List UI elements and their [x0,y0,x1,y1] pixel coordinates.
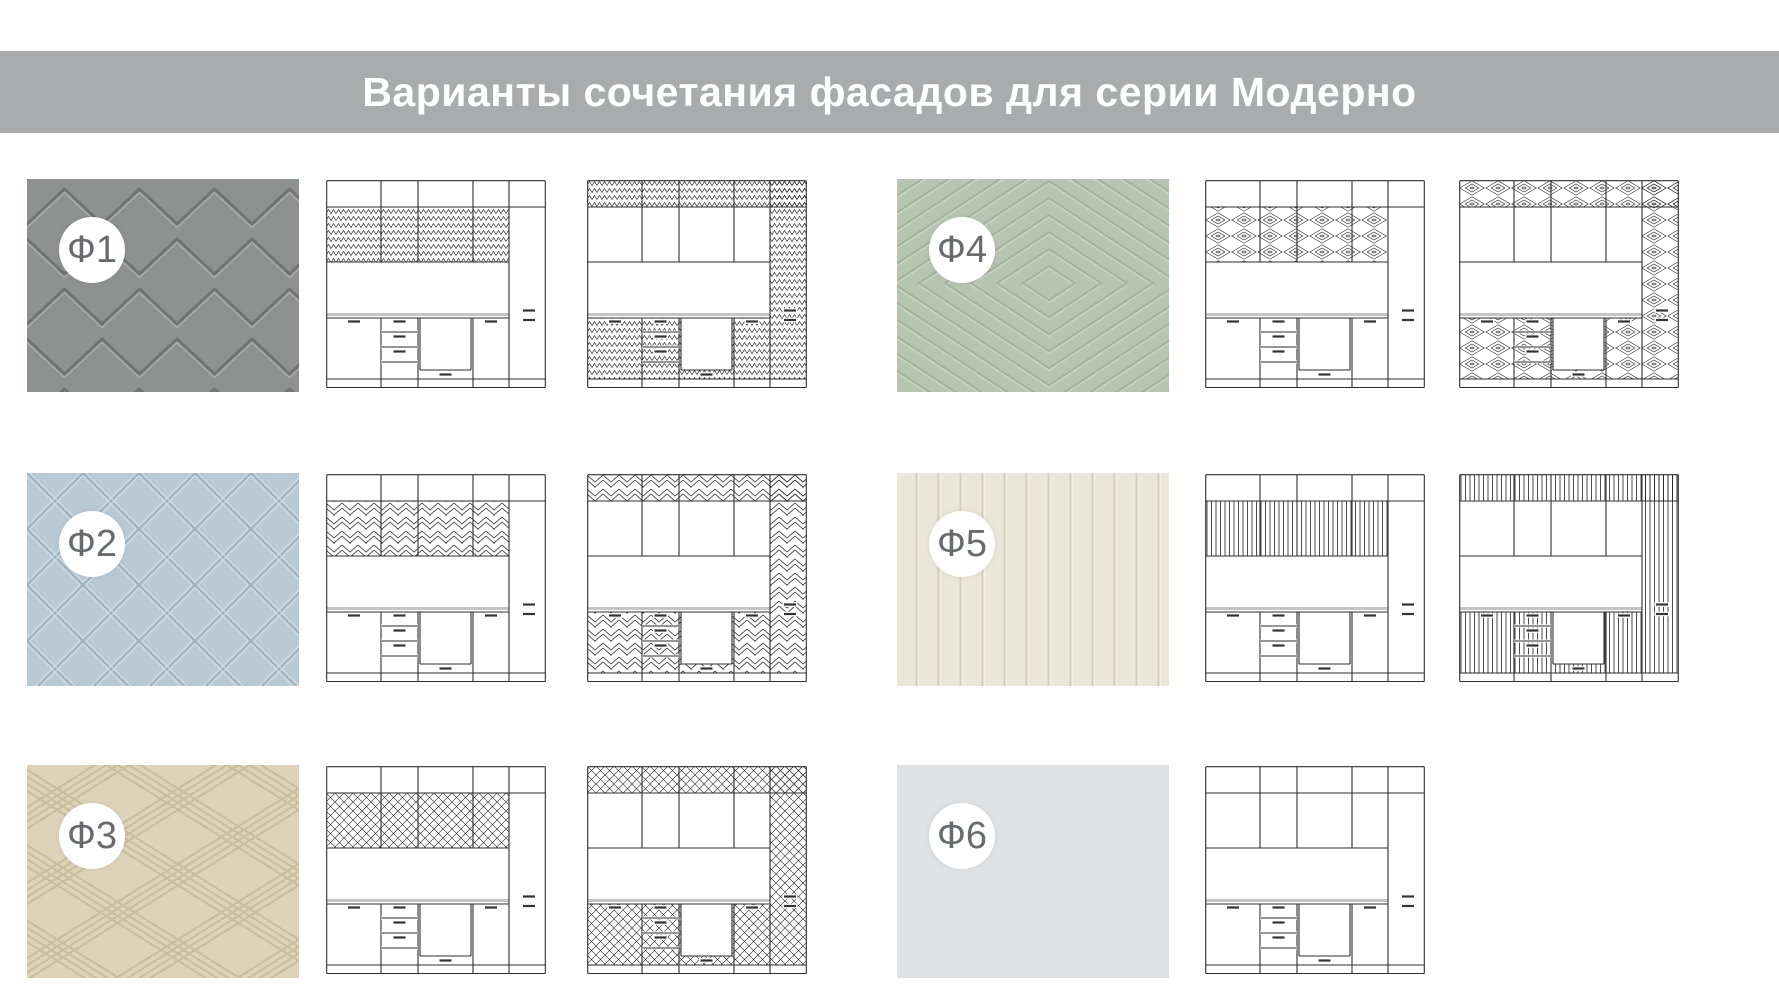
facade-f4-label: Ф4 [937,231,987,269]
facade-f6-badge: Ф6 [929,803,995,869]
facade-f5-swatch: Ф5 [897,473,1169,686]
facade-f2-label: Ф2 [67,525,117,563]
facade-f4-kitchen-wrap-accent [1459,180,1679,391]
facade-f3-texture [27,765,299,978]
title-banner: Варианты сочетания фасадов для серии Мод… [0,51,1779,133]
facade-f6-swatch: Ф6 [897,765,1169,978]
facade-f5-kitchen-wrap-accent [1459,474,1679,685]
facade-f3-kitchen-wrap-accent [587,766,807,977]
facade-f3-swatch: Ф3 [27,765,299,978]
catalog-page: Варианты сочетания фасадов для серии Мод… [0,0,1779,1000]
facade-f5-texture [897,473,1169,686]
facade-f6-label: Ф6 [937,817,987,855]
facade-f5-label: Ф5 [937,525,987,563]
facade-f4-badge: Ф4 [929,217,995,283]
facade-f4-texture [897,179,1169,392]
page-title: Варианты сочетания фасадов для серии Мод… [362,69,1416,116]
facade-f3-kitchen-upper-accent [326,766,546,977]
facade-f2-swatch: Ф2 [27,473,299,686]
facade-f3-badge: Ф3 [59,803,125,869]
facade-f2-texture [27,473,299,686]
facade-f3-label: Ф3 [67,817,117,855]
facade-f6-texture [897,765,1169,978]
facade-f4-swatch: Ф4 [897,179,1169,392]
facade-f6-kitchen-upper-accent [1205,766,1425,977]
facade-f1-kitchen-wrap-accent [587,180,807,391]
facade-f2-kitchen-wrap-accent [587,474,807,685]
facade-f5-badge: Ф5 [929,511,995,577]
facade-f4-kitchen-upper-accent [1205,180,1425,391]
facade-f1-label: Ф1 [67,231,117,269]
facade-f5-kitchen-upper-accent [1205,474,1425,685]
facade-f2-badge: Ф2 [59,511,125,577]
facade-f2-kitchen-upper-accent [326,474,546,685]
facade-f1-swatch: Ф1 [27,179,299,392]
facade-f1-texture [27,179,299,392]
facade-f1-badge: Ф1 [59,217,125,283]
facade-f1-kitchen-upper-accent [326,180,546,391]
